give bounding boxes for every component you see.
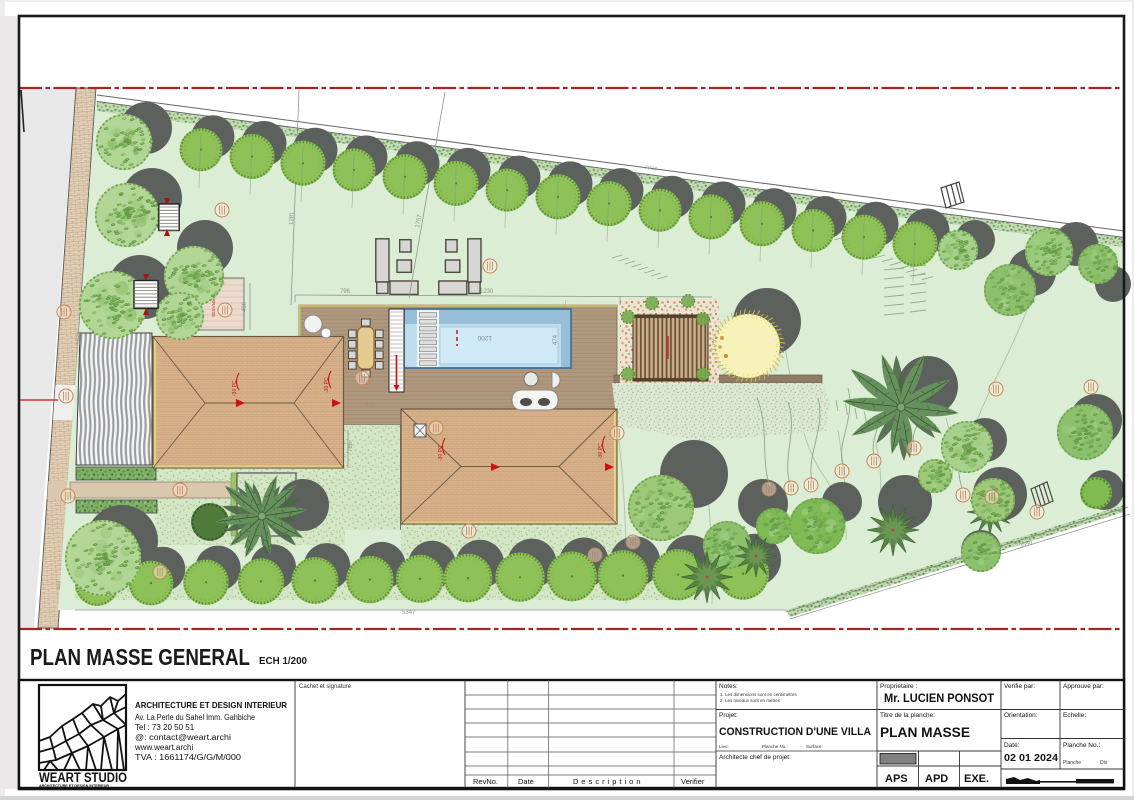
svg-text:Orientation:: Orientation:	[1004, 712, 1038, 719]
svg-text:Mr. LUCIEN PONSOT: Mr. LUCIEN PONSOT	[884, 693, 994, 705]
svg-text:1281: 1281	[289, 211, 295, 225]
svg-text:Div: Div	[1100, 760, 1108, 766]
svg-text:Notes:: Notes:	[719, 683, 738, 690]
svg-text:02 01 2024: 02 01 2024	[1004, 753, 1058, 764]
svg-text:Description: Description	[573, 777, 644, 786]
svg-text:RevNo.: RevNo.	[473, 777, 498, 786]
svg-text:Tel : 73 20 50 51: Tel : 73 20 50 51	[135, 723, 195, 732]
svg-text:Proprietaire :: Proprietaire :	[880, 683, 917, 690]
svg-text:Lieu:: Lieu:	[719, 744, 729, 749]
svg-text:Planche No.:: Planche No.:	[1063, 742, 1100, 749]
svg-text:474: 474	[553, 334, 559, 345]
svg-text:2. Les niveaux sont en metres: 2. Les niveaux sont en metres	[720, 698, 781, 703]
svg-text:Projet:: Projet:	[719, 712, 738, 719]
svg-text:363: 363	[56, 581, 63, 591]
svg-text:-30 PC: -30 PC	[324, 377, 330, 393]
svg-text:-30 PC: -30 PC	[232, 380, 238, 396]
svg-text:1230: 1230	[480, 289, 494, 295]
svg-text:TVA : 1661174/G/G/M/000: TVA : 1661174/G/G/M/000	[135, 753, 242, 762]
svg-text:WEART STUDIO: WEART STUDIO	[39, 770, 127, 785]
svg-text:766: 766	[348, 441, 354, 452]
svg-text:796: 796	[340, 289, 351, 295]
svg-text:PLAN MASSE GENERAL: PLAN MASSE GENERAL	[30, 644, 250, 670]
svg-text:ARCHITECTURE ET DESIGN INTERIE: ARCHITECTURE ET DESIGN INTERIEUR	[135, 700, 287, 710]
svg-text:Date: Date	[518, 777, 534, 786]
svg-text:APS: APS	[885, 773, 908, 785]
svg-text:1. Les dimensions sont en cent: 1. Les dimensions sont en centimetres	[720, 692, 798, 697]
svg-text:-30 PC: -30 PC	[438, 445, 444, 461]
svg-text:400: 400	[242, 301, 248, 312]
svg-text:Planche: Planche	[1063, 760, 1081, 766]
svg-text:-30 PC: -30 PC	[598, 443, 604, 459]
svg-text:Cachet et signature: Cachet et signature	[299, 684, 352, 690]
svg-text:APD: APD	[925, 773, 948, 785]
svg-text:1200: 1200	[477, 334, 492, 341]
svg-text:www.weart.archi: www.weart.archi	[134, 743, 193, 752]
svg-text:Planche No.:: Planche No.:	[762, 744, 788, 749]
svg-text:1673: 1673	[76, 331, 83, 345]
svg-text:430: 430	[365, 404, 376, 410]
svg-text:EXE.: EXE.	[964, 773, 989, 785]
svg-text:Titre de la planche:: Titre de la planche:	[880, 712, 935, 719]
svg-text:PLAN MASSE: PLAN MASSE	[880, 725, 970, 740]
svg-text:Echelle:: Echelle:	[1063, 712, 1086, 719]
svg-text:Architecte chef de projet:: Architecte chef de projet:	[719, 754, 791, 761]
svg-text:Av. La Perle du Sahel Imm. Gah: Av. La Perle du Sahel Imm. Gahbiche	[135, 713, 255, 722]
svg-text:@: contact@weart.archi: @: contact@weart.archi	[135, 733, 231, 742]
svg-text:Approuve par:: Approuve par:	[1063, 683, 1104, 690]
svg-text:5347: 5347	[402, 610, 416, 616]
svg-text:Date:: Date:	[1004, 742, 1020, 749]
svg-text:Verifie par:: Verifie par:	[1004, 683, 1035, 690]
svg-text:Verifier: Verifier	[681, 777, 705, 786]
svg-text:CONSTRUCTION D'UNE VILLA: CONSTRUCTION D'UNE VILLA	[719, 726, 871, 738]
svg-text:ECH 1/200: ECH 1/200	[259, 655, 307, 667]
svg-text:ARCHITECTURE ET DESIGN INTERIE: ARCHITECTURE ET DESIGN INTERIEUR	[39, 784, 109, 788]
svg-text:Surface:: Surface:	[806, 744, 823, 749]
